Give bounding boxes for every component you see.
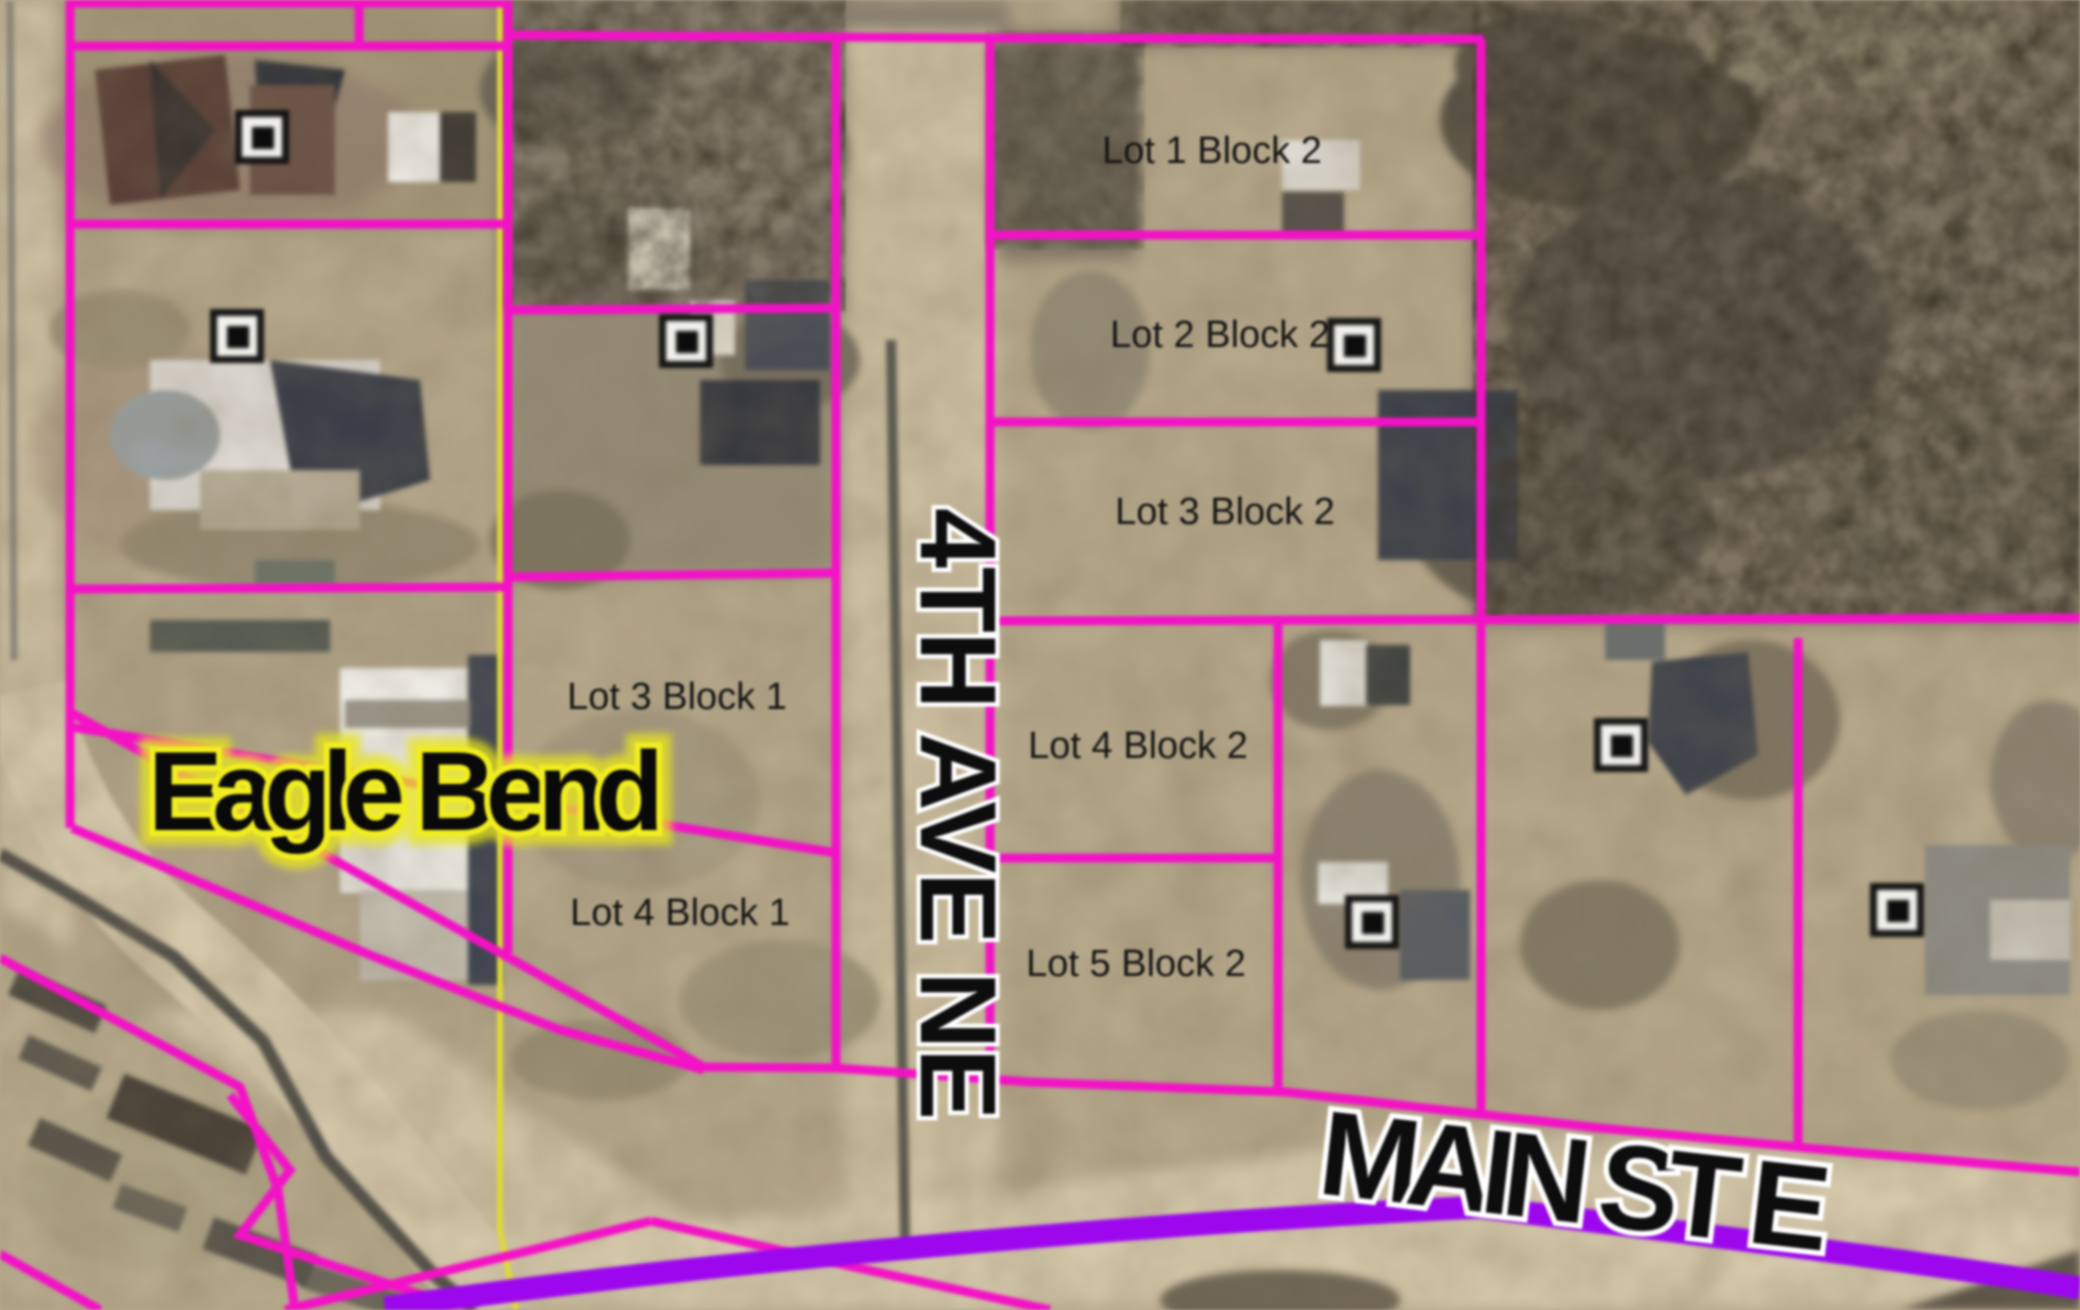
svg-text:Lot 1 Block 2: Lot 1 Block 2 <box>1102 130 1322 172</box>
svg-text:Lot 3 Block 2: Lot 3 Block 2 <box>1115 491 1335 533</box>
svg-text:Eagle Bend: Eagle Bend <box>148 729 664 854</box>
svg-text:Lot 4 Block 2: Lot 4 Block 2 <box>1028 725 1248 767</box>
svg-text:Lot 2 Block 2: Lot 2 Block 2 <box>1110 314 1330 356</box>
svg-text:Lot 5 Block 2: Lot 5 Block 2 <box>1026 943 1246 985</box>
svg-text:Lot 4 Block 1: Lot 4 Block 1 <box>570 892 790 934</box>
svg-text:Lot 3 Block 1: Lot 3 Block 1 <box>567 676 787 718</box>
svg-text:4TH AVE NE: 4TH AVE NE <box>898 508 1019 1120</box>
